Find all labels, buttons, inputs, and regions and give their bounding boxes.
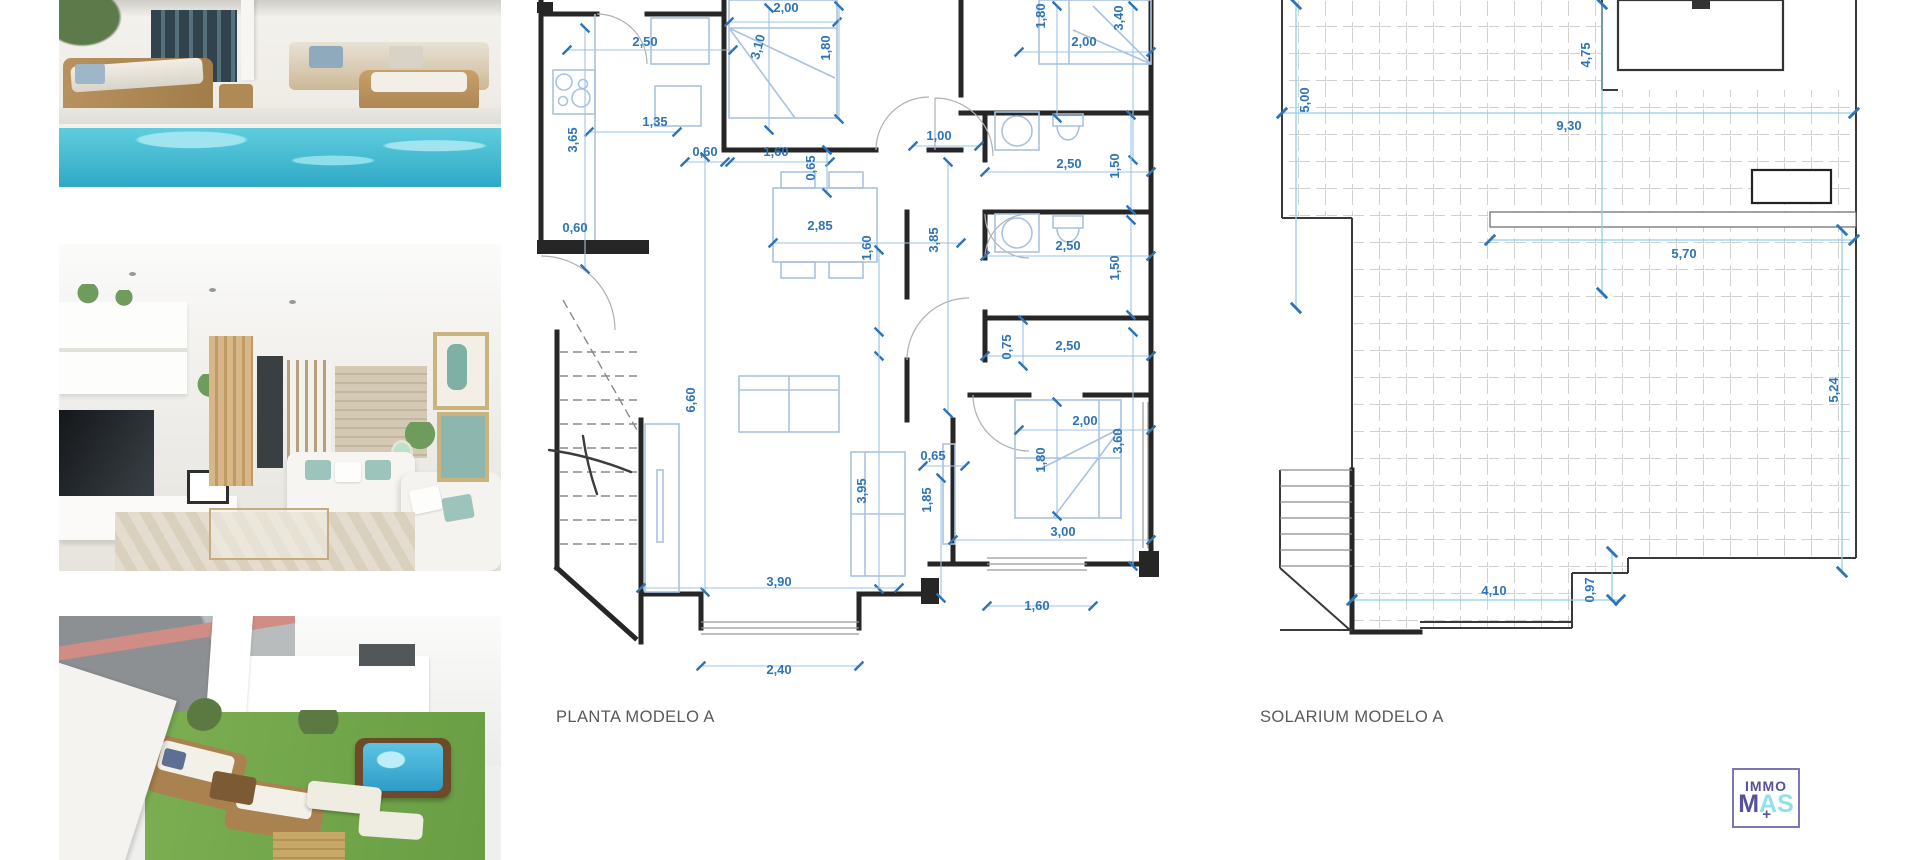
svg-text:3,90: 3,90: [766, 574, 791, 589]
dimension-labels: 2,501,353,650,600,601,600,652,003,101,80…: [562, 0, 1126, 677]
svg-text:0,65: 0,65: [803, 155, 818, 180]
svg-text:0,75: 0,75: [999, 334, 1014, 359]
solarium-plan: 5,004,759,305,705,244,100,97: [1272, 0, 1864, 650]
tiled-area: [1272, 0, 1864, 650]
white-column: [241, 0, 254, 80]
blue-cushion: [309, 46, 343, 68]
svg-text:1,80: 1,80: [818, 35, 833, 60]
logo-line-mas: MAS +: [1738, 793, 1794, 816]
svg-text:0,97: 0,97: [1582, 577, 1597, 602]
svg-text:5,70: 5,70: [1671, 246, 1696, 261]
television: [59, 410, 154, 498]
svg-text:0,65: 0,65: [920, 448, 945, 463]
jacuzzi-water: [363, 743, 443, 791]
svg-text:6,60: 6,60: [683, 387, 698, 412]
white-cushion: [335, 462, 361, 482]
shelf: [59, 348, 187, 352]
photo-pool-terrace: [59, 0, 501, 187]
small-tree: [187, 698, 223, 734]
svg-text:4,75: 4,75: [1578, 42, 1593, 67]
dark-doorway: [257, 356, 283, 468]
wall-art: [437, 412, 489, 482]
ceiling-spotlight: [209, 288, 216, 292]
svg-text:2,00: 2,00: [1071, 34, 1096, 49]
floor-plan: 2,501,353,650,600,601,600,652,003,101,80…: [533, 0, 1173, 695]
teal-cushion: [365, 460, 391, 480]
coffee-table: [209, 508, 329, 560]
svg-text:2,50: 2,50: [1055, 338, 1080, 353]
swimming-pool: [59, 128, 501, 187]
svg-text:2,85: 2,85: [807, 218, 832, 233]
svg-text:1,80: 1,80: [1033, 447, 1048, 472]
svg-text:2,40: 2,40: [766, 662, 791, 677]
logo-letter-m: M: [1738, 790, 1759, 818]
armchair-cushion: [371, 72, 467, 92]
pencil-mark: [549, 436, 631, 494]
svg-text:5,24: 5,24: [1826, 377, 1841, 403]
svg-text:1,50: 1,50: [1107, 153, 1122, 178]
lounger: [358, 810, 424, 840]
ceiling-spotlight: [129, 272, 136, 276]
svg-text:4,10: 4,10: [1481, 583, 1506, 598]
svg-text:1,80: 1,80: [1033, 3, 1048, 28]
solarium-caption: SOLARIUM MODELO A: [1260, 708, 1444, 727]
svg-text:2,00: 2,00: [773, 0, 798, 15]
stone-pillar: [273, 832, 345, 860]
svg-text:2,50: 2,50: [632, 34, 657, 49]
wood-panel: [209, 336, 253, 486]
svg-text:3,60: 3,60: [1110, 428, 1125, 453]
svg-text:3,85: 3,85: [926, 227, 941, 252]
svg-text:1,60: 1,60: [763, 144, 788, 159]
shelf-plant: [77, 284, 99, 306]
photo-aerial-garden: [59, 616, 501, 860]
sofa-right: [401, 472, 501, 571]
svg-text:2,00: 2,00: [1072, 413, 1097, 428]
svg-text:3,00: 3,00: [1050, 524, 1075, 539]
svg-text:2,50: 2,50: [1055, 238, 1080, 253]
svg-text:1,85: 1,85: [919, 487, 934, 512]
svg-text:0,60: 0,60: [562, 220, 587, 235]
svg-text:2,50: 2,50: [1056, 156, 1081, 171]
logo-letter-s: S: [1777, 790, 1794, 818]
svg-text:3,10: 3,10: [747, 33, 768, 61]
svg-text:1,50: 1,50: [1107, 255, 1122, 280]
svg-text:5,00: 5,00: [1297, 87, 1312, 112]
teal-cushion: [305, 460, 331, 480]
svg-text:3,40: 3,40: [1111, 5, 1126, 30]
shelf-plant: [115, 290, 133, 308]
svg-text:1,60: 1,60: [1024, 598, 1049, 613]
teal-cushion: [441, 494, 475, 523]
roof-window: [359, 644, 415, 666]
svg-text:9,30: 9,30: [1556, 118, 1581, 133]
floor-plan-caption: PLANTA MODELO A: [556, 708, 715, 727]
photo-living-room: [59, 244, 501, 571]
svg-text:3,65: 3,65: [565, 127, 580, 152]
door-arcs: [541, 14, 1029, 451]
immo-mas-logo: IMMO MAS +: [1732, 768, 1800, 828]
svg-text:3,95: 3,95: [854, 478, 869, 503]
lounger-pillow: [75, 64, 105, 84]
svg-text:1,60: 1,60: [859, 235, 874, 260]
svg-text:0,60: 0,60: [692, 144, 717, 159]
walls: [537, 0, 1159, 642]
planter-grasses: [295, 710, 347, 734]
plant: [59, 0, 129, 52]
logo-plus-icon: +: [1762, 803, 1771, 826]
svg-text:1,00: 1,00: [926, 128, 951, 143]
cactus-art: [447, 344, 467, 390]
svg-text:1,35: 1,35: [642, 114, 667, 129]
white-cushion: [389, 46, 423, 68]
ceiling-spotlight: [289, 300, 296, 304]
stairs: [559, 300, 637, 544]
